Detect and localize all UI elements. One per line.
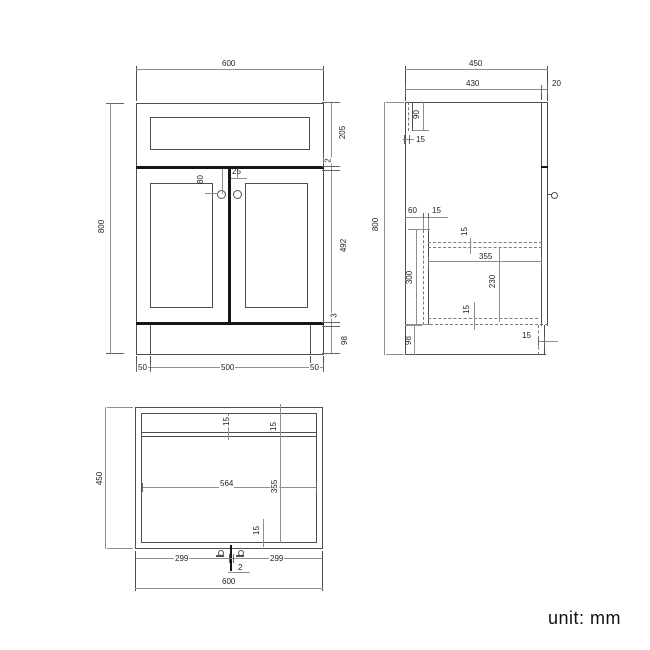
dim-plinth-inset-right: 50 [309, 363, 320, 372]
extension-line [323, 66, 324, 101]
dim-back-offset: 60 [408, 206, 417, 215]
plan-back-rail-line [142, 432, 317, 433]
dim-tick [386, 102, 404, 103]
dim-tick [229, 554, 230, 563]
plan-left-knob-base [216, 555, 224, 557]
dim-tick [541, 257, 542, 266]
dim-internal-width: 564 [219, 479, 234, 488]
extension-line [322, 551, 323, 591]
dim-door-thickness: 20 [552, 79, 561, 88]
plan-back-rail-line2 [142, 436, 317, 437]
dim-side-body-depth: 430 [466, 79, 479, 88]
dim-line [428, 261, 542, 262]
dim-line [499, 248, 500, 322]
side-bottom-panel-hidden-line [428, 318, 538, 319]
side-support-hidden-line [423, 230, 424, 325]
dim-plinth-height: 98 [340, 336, 349, 345]
extension-line [136, 66, 137, 101]
dim-plan-width: 600 [222, 577, 235, 586]
dim-line [405, 69, 548, 70]
dim-tick [316, 483, 317, 492]
dim-line [231, 178, 247, 179]
side-front-inner-line [541, 102, 542, 326]
side-shelf-top-line [428, 242, 542, 243]
dim-plinth-recess: 15 [522, 331, 531, 340]
dim-tick [106, 103, 124, 104]
dim-tick [409, 135, 410, 144]
dim-shelf-clearance: 230 [488, 275, 497, 288]
dim-tick [322, 322, 340, 323]
dim-tick [142, 483, 143, 492]
dim-tick [322, 166, 340, 167]
dim-line [414, 325, 415, 355]
side-support-line [428, 230, 429, 325]
dim-tick [538, 337, 539, 346]
dim-plan-back-rail-inset: 15 [269, 421, 278, 432]
dim-bottom-panel-thickness: 15 [462, 305, 471, 314]
dim-line [222, 169, 223, 194]
dim-shelf-thickness: 15 [460, 227, 469, 236]
dim-line [405, 89, 548, 90]
dim-tick [544, 337, 545, 346]
dim-line [470, 238, 471, 254]
dim-tick [107, 407, 133, 408]
extension-line [135, 551, 136, 591]
dim-tick [405, 325, 422, 326]
dim-door-bottom-gap: 3 [330, 312, 339, 318]
side-front-outer-line [547, 102, 548, 326]
dim-tick [413, 130, 429, 131]
dim-worktop-gap: 2 [324, 157, 333, 163]
dim-door-width-left: 299 [174, 554, 189, 563]
dim-handle-drop: 80 [196, 175, 205, 184]
front-plinth-left-line [150, 325, 151, 354]
dim-tick [233, 554, 234, 563]
side-door-knob [551, 192, 558, 199]
technical-drawing-canvas: 600 800 205 2 492 3 98 80 25 [0, 0, 650, 650]
dim-plinth-width: 500 [220, 363, 235, 372]
dim-tick [107, 548, 133, 549]
dim-side-depth: 450 [469, 59, 482, 68]
dim-back-rail-thickness: 15 [416, 135, 425, 144]
dim-line [136, 69, 324, 70]
dim-line [110, 103, 111, 354]
dim-support-height: 300 [405, 271, 414, 284]
dim-tick [322, 353, 340, 354]
dim-line [263, 519, 264, 547]
dim-tick [408, 229, 430, 230]
dim-tick [405, 213, 406, 222]
dim-line [474, 302, 475, 330]
right-door-knob [233, 190, 242, 199]
side-shelf-bottom-line [428, 247, 542, 248]
dim-tick [405, 85, 406, 94]
dim-front-width: 600 [222, 59, 235, 68]
dim-plan-depth: 450 [95, 472, 104, 485]
front-right-door-panel [245, 183, 308, 308]
dim-line [105, 407, 106, 549]
dim-tick [323, 363, 324, 372]
dim-tick [150, 363, 151, 372]
dim-tick [106, 353, 124, 354]
dim-internal-depth: 355 [270, 479, 279, 494]
side-top-line [405, 102, 548, 103]
dim-tick [322, 170, 340, 171]
dim-shelf-depth: 355 [478, 252, 493, 261]
dim-tick [205, 193, 218, 194]
unit-label: unit: mm [548, 608, 621, 629]
side-top-rail-hidden-line [408, 102, 409, 131]
dim-line [538, 341, 558, 342]
dim-side-height: 800 [371, 218, 380, 231]
front-door-bottom-line [136, 322, 324, 325]
side-bottom-line [405, 354, 546, 355]
dim-back-rail-height: 90 [412, 110, 421, 119]
dim-tick [404, 135, 405, 144]
dim-drawer-front-height: 205 [338, 126, 347, 139]
extension-line [547, 66, 548, 101]
dim-door-height: 492 [339, 239, 348, 252]
dim-tick [322, 326, 340, 327]
dim-front-height: 800 [97, 220, 106, 233]
dim-door-width-right: 299 [269, 554, 284, 563]
extension-line [405, 66, 406, 101]
front-door-stile [228, 169, 231, 322]
dim-tick [322, 102, 340, 103]
dim-tick [386, 354, 404, 355]
dim-tick [547, 85, 548, 94]
dim-handle-offset: 25 [232, 167, 241, 176]
dim-door-gap: 2 [238, 563, 242, 572]
dim-line [416, 230, 417, 325]
dim-plinth-inset-left: 50 [137, 363, 148, 372]
front-left-door-panel [150, 183, 213, 308]
dim-line [423, 102, 424, 131]
dim-tick [228, 572, 250, 573]
dim-side-plinth-height: 98 [404, 336, 413, 345]
dim-line [405, 217, 448, 218]
side-drawer-door-split [541, 166, 548, 168]
front-drawer-panel [150, 117, 310, 150]
plan-depth-ref-line [280, 404, 281, 543]
dim-line [135, 588, 323, 589]
dim-plan-back-rail-thickness: 15 [222, 416, 231, 427]
plan-right-knob-base [236, 555, 244, 557]
dim-line [384, 102, 385, 355]
dim-tick [428, 257, 429, 266]
dim-front-panel-thickness: 15 [252, 526, 261, 535]
dim-support-thickness: 15 [432, 206, 441, 215]
front-plinth-right-line [310, 325, 311, 354]
dim-tick [541, 85, 542, 94]
